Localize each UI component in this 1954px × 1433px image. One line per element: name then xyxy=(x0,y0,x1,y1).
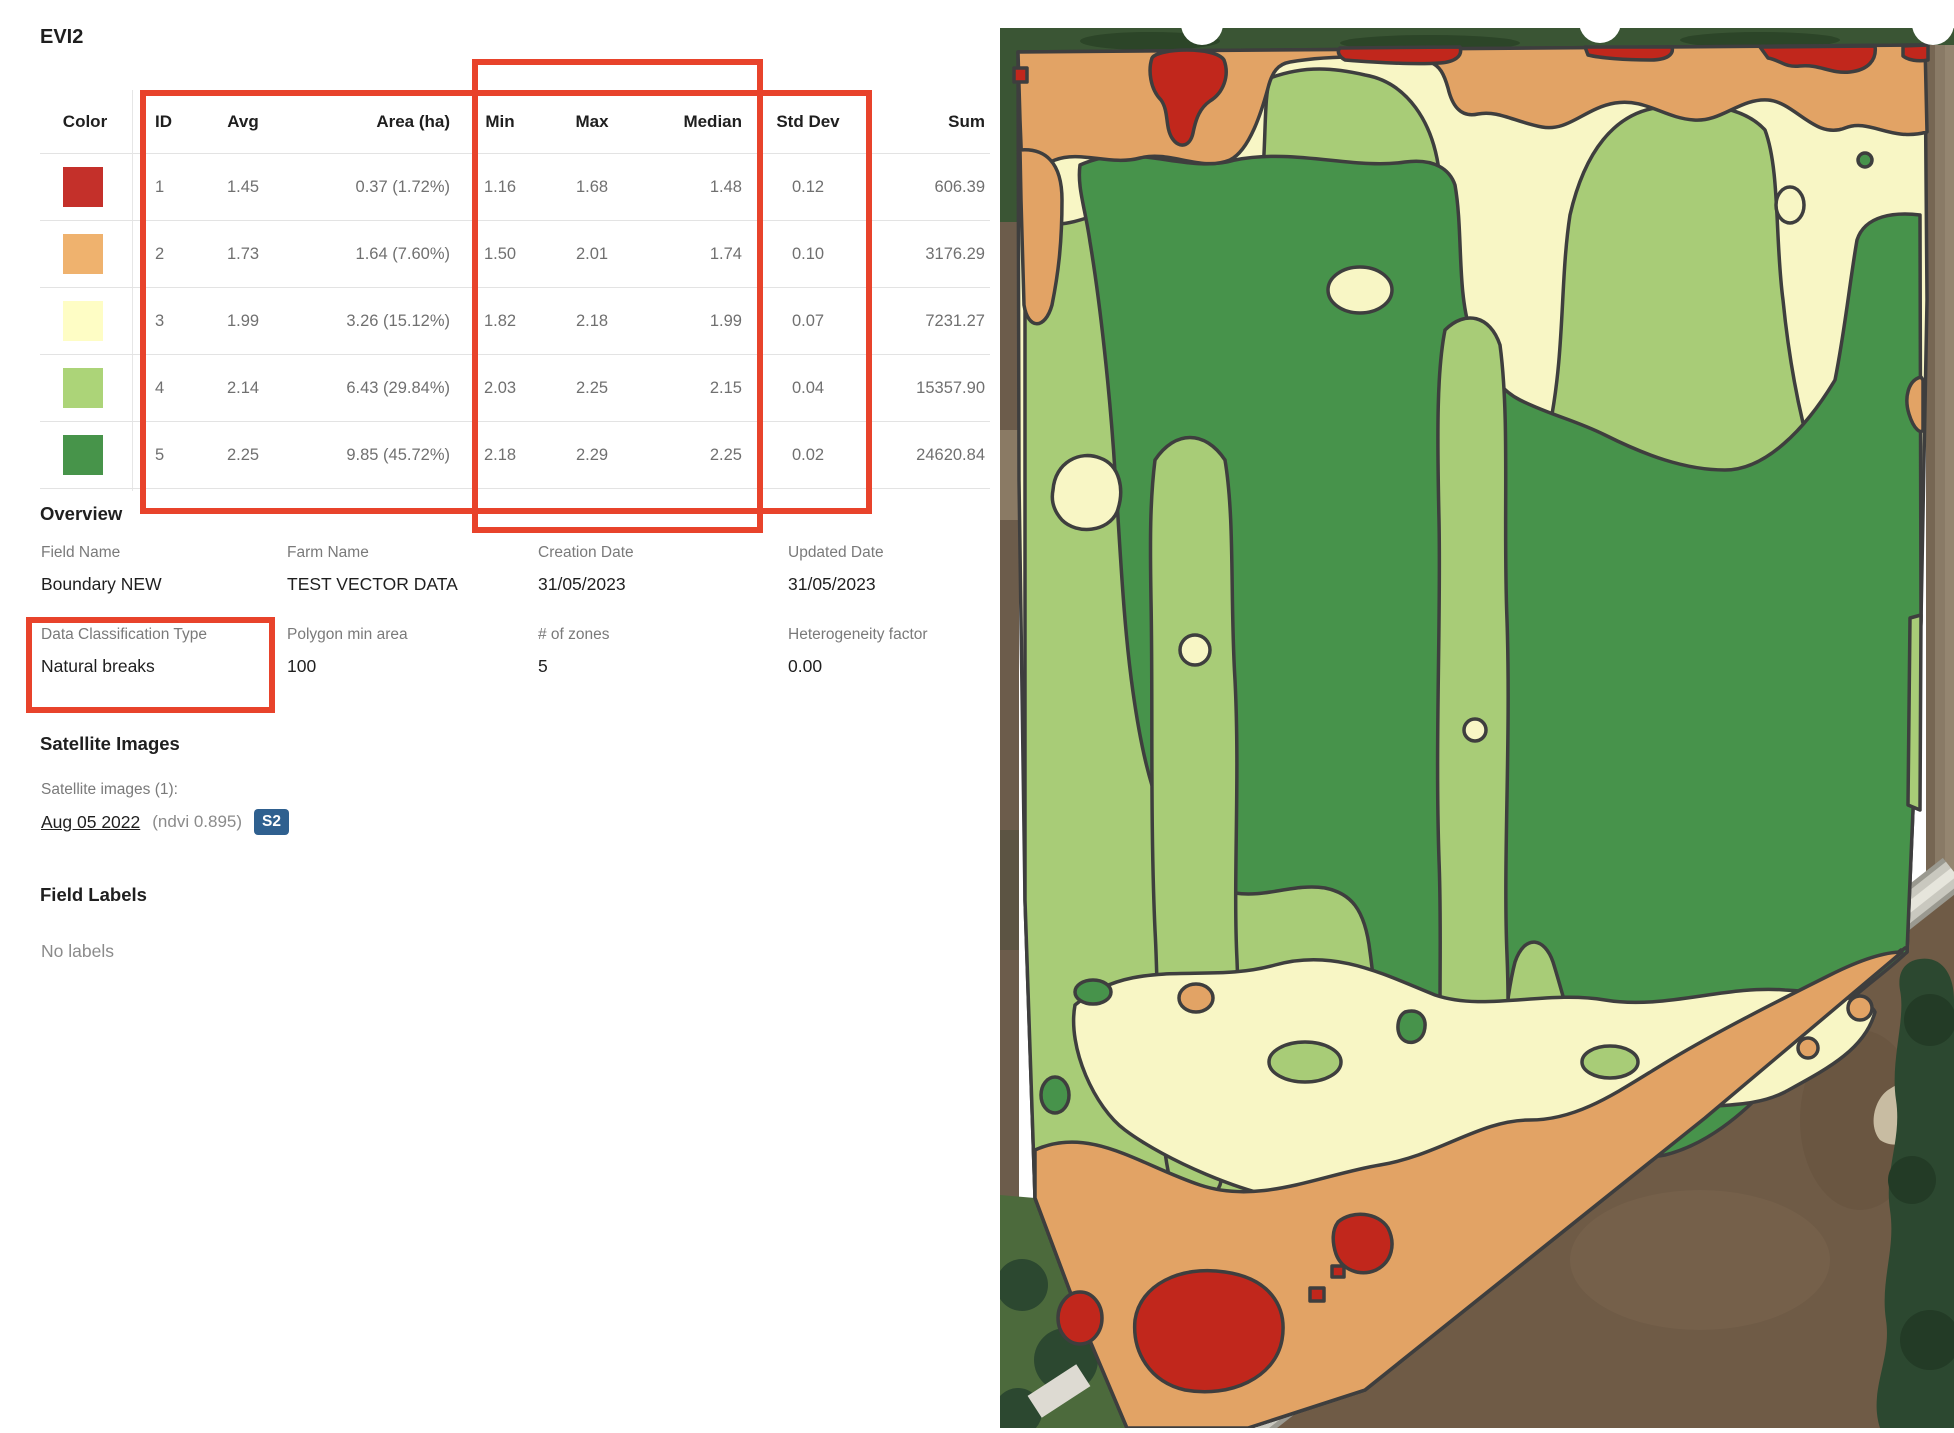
table-header-row: Color ID Avg Area (ha) Min Max Median St… xyxy=(40,90,990,157)
zone5-speck xyxy=(1858,153,1872,167)
zone1-blob xyxy=(1058,1292,1102,1344)
s2-badge[interactable]: S2 xyxy=(254,809,289,835)
zone3-blob xyxy=(1180,635,1210,665)
overview-field-label: Creation Date xyxy=(538,544,634,562)
table-row: 4 2.14 6.43 (29.84%) 2.03 2.25 2.15 0.04… xyxy=(40,355,990,422)
col-header-color: Color xyxy=(40,90,130,153)
cell-std-dev: 0.10 xyxy=(765,221,851,288)
cell-median: 1.48 xyxy=(620,154,742,221)
overview-field-value: 100 xyxy=(287,656,316,677)
ndvi-value: (ndvi 0.895) xyxy=(152,812,242,832)
overview-field-value: 31/05/2023 xyxy=(538,574,626,595)
overview-field-label: Polygon min area xyxy=(287,626,408,644)
vertex-handle[interactable] xyxy=(1181,3,1223,45)
cell-min: 1.16 xyxy=(460,154,540,221)
satellite-date-link[interactable]: Aug 05 2022 xyxy=(41,812,140,833)
col-header-area: Area (ha) xyxy=(285,90,450,153)
zone-color-swatch xyxy=(63,435,103,475)
cell-std-dev: 0.04 xyxy=(765,355,851,422)
cell-median: 2.15 xyxy=(620,355,742,422)
overview-field-value: Natural breaks xyxy=(41,656,155,677)
cell-sum: 15357.90 xyxy=(853,355,985,422)
cell-min: 2.03 xyxy=(460,355,540,422)
col-header-std-dev: Std Dev xyxy=(765,90,851,153)
table-row: 1 1.45 0.37 (1.72%) 1.16 1.68 1.48 0.12 … xyxy=(40,154,990,221)
zone5-speck xyxy=(1398,1011,1425,1042)
cell-sum: 24620.84 xyxy=(853,422,985,489)
overview-field-label: Heterogeneity factor xyxy=(788,626,928,644)
zone3-blob xyxy=(1776,187,1804,223)
zone1-speck xyxy=(1014,68,1027,82)
zone5-speck xyxy=(1075,980,1111,1004)
zone4-edge-sliver xyxy=(1908,615,1921,810)
zone1-speck xyxy=(1310,1288,1324,1301)
page-strip xyxy=(1000,0,1954,28)
cell-area: 1.64 (7.60%) xyxy=(285,221,450,288)
col-header-min: Min xyxy=(460,90,540,153)
zone1-strip xyxy=(1903,45,1928,61)
overview-field-label: Farm Name xyxy=(287,544,369,562)
soil-patch xyxy=(1000,430,1019,520)
table-row: 2 1.73 1.64 (7.60%) 1.50 2.01 1.74 0.10 … xyxy=(40,221,990,288)
table-row: 5 2.25 9.85 (45.72%) 2.18 2.29 2.25 0.02… xyxy=(40,422,990,489)
vertex-handle[interactable] xyxy=(1912,3,1954,45)
zone3-blob xyxy=(1464,719,1486,741)
zone1-blob xyxy=(1135,1271,1283,1392)
cell-std-dev: 0.07 xyxy=(765,288,851,355)
zone-color-swatch xyxy=(63,234,103,274)
cell-min: 1.82 xyxy=(460,288,540,355)
left-soil-strip xyxy=(1000,52,1019,1202)
cell-area: 3.26 (15.12%) xyxy=(285,288,450,355)
zones-map[interactable] xyxy=(1000,0,1954,1428)
tree-blob xyxy=(1888,1156,1936,1204)
col-header-median: Median xyxy=(620,90,742,153)
vertex-handle[interactable] xyxy=(1579,1,1621,43)
details-panel: EVI2 Color ID Avg Area (ha) Min Max Medi… xyxy=(0,0,1000,1428)
overview-field-label: Data Classification Type xyxy=(41,626,207,644)
table-row: 3 1.99 3.26 (15.12%) 1.82 2.18 1.99 0.07… xyxy=(40,288,990,355)
zone-color-swatch xyxy=(63,301,103,341)
cell-sum: 7231.27 xyxy=(853,288,985,355)
overview-field-label: Updated Date xyxy=(788,544,884,562)
overview-field-value: Boundary NEW xyxy=(41,574,162,595)
index-title: EVI2 xyxy=(40,26,83,49)
zone3-blob xyxy=(1052,456,1120,530)
overview-field-label: Field Name xyxy=(41,544,120,562)
cell-sum: 606.39 xyxy=(853,154,985,221)
cell-min: 1.50 xyxy=(460,221,540,288)
zone4-island xyxy=(1582,1046,1638,1078)
zone2-speck xyxy=(1848,996,1872,1020)
zone2-speck xyxy=(1798,1038,1818,1058)
overview-field-value: 31/05/2023 xyxy=(788,574,876,595)
satellite-image-row: Aug 05 2022 (ndvi 0.895) S2 xyxy=(41,806,289,838)
tree-blob xyxy=(1904,994,1954,1046)
zone1-strip xyxy=(1585,47,1672,60)
cell-median: 2.25 xyxy=(620,422,742,489)
zone1-blob xyxy=(1333,1214,1392,1272)
overview-heading: Overview xyxy=(40,503,122,525)
zone-color-swatch xyxy=(63,167,103,207)
zone-color-swatch xyxy=(63,368,103,408)
track-light xyxy=(1945,45,1954,890)
overview-field-value: 0.00 xyxy=(788,656,822,677)
zone1-strip xyxy=(1338,47,1460,64)
cell-std-dev: 0.02 xyxy=(765,422,851,489)
cell-area: 0.37 (1.72%) xyxy=(285,154,450,221)
field-patch xyxy=(1570,1190,1830,1330)
no-labels-text: No labels xyxy=(41,941,114,962)
col-header-sum: Sum xyxy=(853,90,985,153)
satellite-images-heading: Satellite Images xyxy=(40,733,180,755)
soil-patch xyxy=(1000,830,1019,950)
cell-median: 1.74 xyxy=(620,221,742,288)
zone4-island xyxy=(1269,1042,1341,1082)
overview-field-value: TEST VECTOR DATA xyxy=(287,574,458,595)
satellite-count-label: Satellite images (1): xyxy=(41,781,178,799)
cell-std-dev: 0.12 xyxy=(765,154,851,221)
cell-min: 2.18 xyxy=(460,422,540,489)
cell-median: 1.99 xyxy=(620,288,742,355)
cell-area: 9.85 (45.72%) xyxy=(285,422,450,489)
zones-table: Color ID Avg Area (ha) Min Max Median St… xyxy=(40,90,990,492)
zone2-speck xyxy=(1179,984,1213,1012)
zone3-blob xyxy=(1328,267,1392,313)
zone1-speck xyxy=(1332,1266,1344,1277)
cell-sum: 3176.29 xyxy=(853,221,985,288)
zone5-speck xyxy=(1041,1077,1069,1113)
overview-field-value: 5 xyxy=(538,656,548,677)
field-labels-heading: Field Labels xyxy=(40,884,147,906)
cell-area: 6.43 (29.84%) xyxy=(285,355,450,422)
overview-field-label: # of zones xyxy=(538,626,610,644)
